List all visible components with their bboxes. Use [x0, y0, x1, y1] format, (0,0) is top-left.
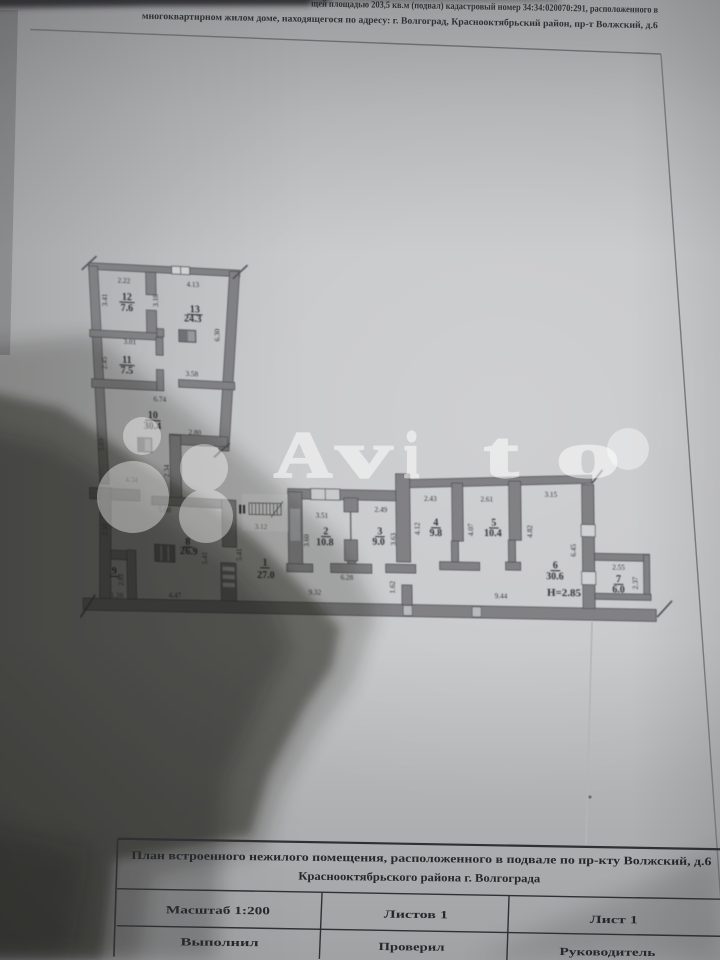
- svg-text:4.07: 4.07: [467, 523, 475, 536]
- svg-text:4: 4: [433, 518, 438, 529]
- svg-text:3.18: 3.18: [152, 294, 160, 307]
- svg-text:Выполнил: Выполнил: [180, 936, 258, 949]
- svg-text:Руководитель: Руководитель: [559, 946, 655, 959]
- svg-text:3.41: 3.41: [101, 293, 109, 306]
- svg-text:3.51: 3.51: [316, 512, 329, 520]
- svg-text:2.61: 2.61: [481, 495, 494, 503]
- svg-text:24.3: 24.3: [184, 313, 202, 325]
- svg-text:2.55: 2.55: [612, 564, 625, 572]
- svg-text:2.37: 2.37: [632, 576, 640, 589]
- svg-text:3: 3: [377, 526, 382, 537]
- svg-text:3.63: 3.63: [390, 532, 398, 545]
- svg-text:6.0: 6.0: [612, 585, 625, 596]
- svg-text:30.6: 30.6: [546, 571, 564, 582]
- svg-text:o: o: [556, 419, 620, 492]
- svg-text:t: t: [484, 419, 518, 492]
- svg-text:4.12: 4.12: [414, 522, 422, 535]
- svg-text:2.22: 2.22: [118, 277, 131, 286]
- svg-text:5: 5: [491, 518, 496, 529]
- svg-text:Проверил: Проверил: [378, 941, 444, 954]
- svg-text:2.43: 2.43: [424, 495, 437, 503]
- svg-text:3.15: 3.15: [545, 491, 558, 499]
- svg-text:7.6: 7.6: [121, 303, 134, 315]
- svg-text:A: A: [274, 419, 332, 492]
- svg-text:9.44: 9.44: [495, 592, 508, 600]
- svg-text:Масштаб 1:200: Масштаб 1:200: [166, 904, 271, 917]
- svg-text:3.01: 3.01: [124, 338, 137, 347]
- svg-text:H=2.85: H=2.85: [547, 587, 582, 600]
- svg-text:3.58: 3.58: [185, 370, 198, 379]
- svg-text:9.0: 9.0: [372, 537, 385, 548]
- svg-text:6.45: 6.45: [570, 544, 578, 557]
- svg-text:10.4: 10.4: [484, 528, 502, 539]
- svg-text:1.62: 1.62: [389, 580, 397, 593]
- svg-text:v: v: [336, 419, 392, 492]
- svg-text:6: 6: [553, 560, 558, 571]
- svg-text:Лист 1: Лист 1: [590, 914, 638, 927]
- svg-text:4.82: 4.82: [526, 525, 534, 538]
- svg-text:7: 7: [616, 574, 621, 585]
- svg-text:9.8: 9.8: [430, 528, 443, 539]
- svg-text:6.30: 6.30: [214, 328, 222, 341]
- svg-text:i: i: [404, 419, 419, 492]
- svg-text:4.13: 4.13: [186, 281, 199, 290]
- svg-text:Листов 1: Листов 1: [384, 909, 448, 922]
- svg-text:2.49: 2.49: [375, 506, 388, 514]
